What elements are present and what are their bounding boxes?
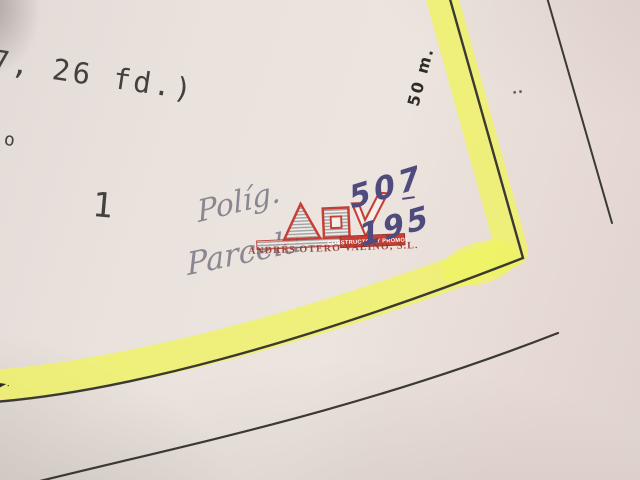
point-o-label: o bbox=[3, 131, 16, 150]
left-edge-mark: ►. bbox=[0, 379, 10, 391]
right-boundary-line bbox=[546, 0, 612, 223]
letter-a-shape bbox=[283, 203, 321, 240]
outer-road-line bbox=[0, 333, 558, 480]
ditto-marks: .. bbox=[511, 82, 525, 97]
parcel-number-label: 1 bbox=[91, 188, 114, 224]
letter-o-center bbox=[331, 216, 342, 228]
photographed-plan: { "photo": { "printed": { "dimension_not… bbox=[0, 0, 640, 480]
